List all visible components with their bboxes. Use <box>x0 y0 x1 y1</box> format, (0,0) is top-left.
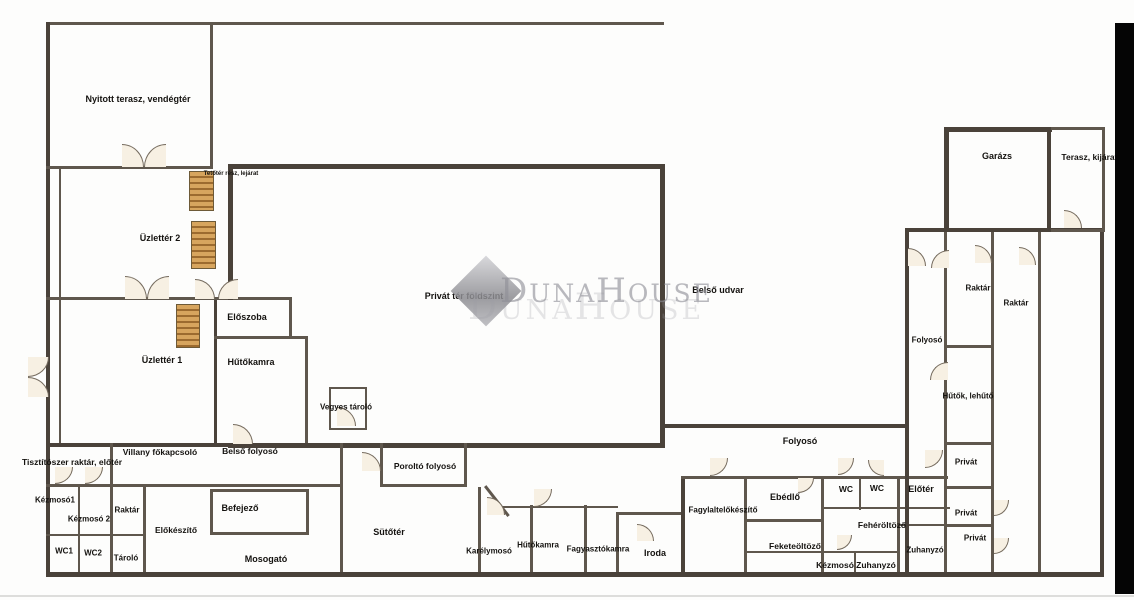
room-label-feketeoltozo: Feketeöltöző <box>769 541 821 551</box>
door-arc <box>994 538 1009 554</box>
door-arc <box>487 497 505 515</box>
room-label-belso-folyoso: Belső folyosó <box>222 446 278 456</box>
wall <box>1051 229 1105 232</box>
room-label-wc-1: WC1 <box>55 547 73 556</box>
room-label-wc-2: WC2 <box>84 549 102 558</box>
wall <box>329 387 367 389</box>
room-label-belso-udvar: Belső udvar <box>692 285 744 295</box>
room-label-folyoso-also: Folyosó <box>783 436 818 446</box>
wall <box>289 297 292 339</box>
wall <box>584 505 587 575</box>
wall <box>663 424 907 428</box>
room-label-sutoter: Sütőtér <box>373 527 405 537</box>
room-label-privat-c: Privát <box>964 534 986 543</box>
wall <box>681 477 685 575</box>
wall <box>380 484 467 487</box>
wall <box>944 486 994 489</box>
room-label-raktar-jobb-1: Raktár <box>966 284 991 293</box>
door-arc <box>55 467 73 484</box>
wall <box>46 484 342 487</box>
wall <box>306 489 309 535</box>
wall <box>46 534 145 536</box>
wall <box>305 336 308 448</box>
room-label-elokeszito: Előkészítő <box>155 525 197 535</box>
wall <box>380 443 383 487</box>
door-arc <box>362 452 381 471</box>
wall <box>340 443 343 575</box>
wall <box>660 164 665 448</box>
wall <box>616 512 684 515</box>
room-label-privat-ter: Privát tér földszint <box>425 291 504 301</box>
wall <box>59 168 61 445</box>
room-label-hutokamra-1: Hűtőkamra <box>227 357 274 367</box>
door-arc <box>710 458 728 476</box>
room-label-raktar-jobb-2: Raktár <box>1004 299 1029 308</box>
door-arc <box>1019 247 1036 265</box>
door-arc <box>85 467 103 484</box>
wall <box>210 532 309 535</box>
room-label-eloszoba: Előszoba <box>227 312 267 322</box>
wall <box>1100 228 1104 575</box>
room-label-eloter: Előtér <box>908 484 934 494</box>
wall <box>143 487 146 575</box>
wall <box>944 524 994 527</box>
door-arc <box>147 276 169 299</box>
stairs-icon <box>189 171 214 211</box>
watermark-ghost-text: DUNAHOUSE <box>468 290 704 329</box>
door-arc <box>837 535 852 550</box>
floor-plan: Nyitott terasz, vendégtér Tetőtér rész, … <box>0 0 1134 600</box>
room-label-karelymoso: Karélymosó <box>466 547 512 556</box>
wall <box>859 476 861 510</box>
room-label-tisztitoszer: Tisztítószer raktár, előtér <box>22 457 122 467</box>
door-arc <box>144 144 166 167</box>
wall <box>214 336 308 339</box>
room-label-porolto-folyoso: Poroltó folyosó <box>394 461 456 471</box>
room-label-zuhanyzo-a: Zuhanyzó <box>856 560 896 570</box>
stairs-icon <box>191 221 216 269</box>
door-arc <box>925 450 943 468</box>
wall <box>944 127 1052 132</box>
room-label-villany: Villany főkapcsoló <box>123 447 197 457</box>
wall <box>464 443 467 487</box>
door-arc <box>233 424 253 444</box>
wall <box>1051 127 1105 130</box>
room-label-iroda: Iroda <box>644 548 666 558</box>
room-label-kezmoso-2: Kézmosó 2 <box>68 515 110 524</box>
door-arc <box>218 279 238 299</box>
wall <box>210 22 213 168</box>
door-arc <box>908 248 926 266</box>
room-label-fagyasztokamra: Fagyasztókamra <box>567 545 630 554</box>
wall <box>744 551 900 553</box>
door-arc <box>1064 210 1082 228</box>
door-arc <box>975 245 992 263</box>
room-label-wc-b: WC <box>870 483 884 493</box>
wall <box>744 519 824 522</box>
door-arc <box>125 276 147 299</box>
room-label-tarolo: Tároló <box>114 554 138 563</box>
door-arc <box>798 478 814 493</box>
wall <box>944 442 994 445</box>
wall <box>744 476 747 575</box>
wall <box>329 428 367 430</box>
room-label-hutokamra-2: Hűtőkamra <box>517 541 559 550</box>
door-arc <box>122 144 144 167</box>
room-label-hutok-lehuto: Hűtők, lehűtő <box>942 392 993 401</box>
wall <box>821 507 950 509</box>
photo-edge-line <box>0 595 1134 597</box>
door-arc <box>868 460 884 476</box>
room-label-ebedlo: Ebédlő <box>770 492 800 502</box>
room-label-privat-a: Privát <box>955 458 977 467</box>
wall <box>500 506 618 508</box>
wall <box>1102 127 1105 232</box>
wall <box>78 487 80 575</box>
wall <box>944 345 994 348</box>
watermark-brand-text: DUNAHOUSE <box>500 274 713 311</box>
wall <box>210 489 213 535</box>
room-label-feheroltozo: Fehéröltöző <box>858 520 906 530</box>
door-arc <box>534 489 552 507</box>
room-label-garazs: Garázs <box>982 151 1012 161</box>
room-label-fagylalt: Fagylaltelőkészítő <box>689 506 758 515</box>
room-label-befejezo: Befejező <box>221 503 258 513</box>
door-arc <box>195 279 215 299</box>
wall <box>210 489 309 492</box>
door-arc <box>930 362 948 380</box>
wall <box>48 22 664 25</box>
room-label-raktar-bal: Raktár <box>115 506 140 515</box>
room-label-kezmoso-jobb: Kézmosó <box>816 560 854 570</box>
room-label-vegyes-tarolo: Vegyes tároló <box>320 403 372 412</box>
wall <box>46 572 1104 577</box>
door-arc <box>994 500 1009 516</box>
wall <box>228 164 665 169</box>
stairs-icon <box>176 304 200 348</box>
wall <box>1047 127 1051 230</box>
wall <box>944 127 949 230</box>
room-label-uzletter-1: Üzlettér 1 <box>142 355 183 365</box>
room-label-mosogato: Mosogató <box>245 554 288 564</box>
wall <box>478 487 481 575</box>
room-label-privat-b: Privát <box>955 509 977 518</box>
room-label-folyoso-jobb: Folyosó <box>912 336 943 345</box>
room-label-zuhanyzo-b: Zuhanyzó <box>906 546 943 555</box>
wall <box>1038 232 1041 575</box>
room-label-uzletter-2: Üzlettér 2 <box>140 233 181 243</box>
room-label-kezmoso-1: Kézmosó1 <box>35 496 75 505</box>
photo-black-bar <box>1115 23 1134 594</box>
wall <box>616 512 619 575</box>
door-arc <box>838 458 854 475</box>
wall <box>214 297 217 447</box>
room-label-tetoter-lejarat: Tetőtér rész, lejárat <box>204 171 259 177</box>
door-arc <box>931 250 949 268</box>
room-label-nyitott-terasz: Nyitott terasz, vendégtér <box>85 94 190 104</box>
room-label-wc-a: WC <box>839 484 853 494</box>
door-arc <box>637 524 654 541</box>
